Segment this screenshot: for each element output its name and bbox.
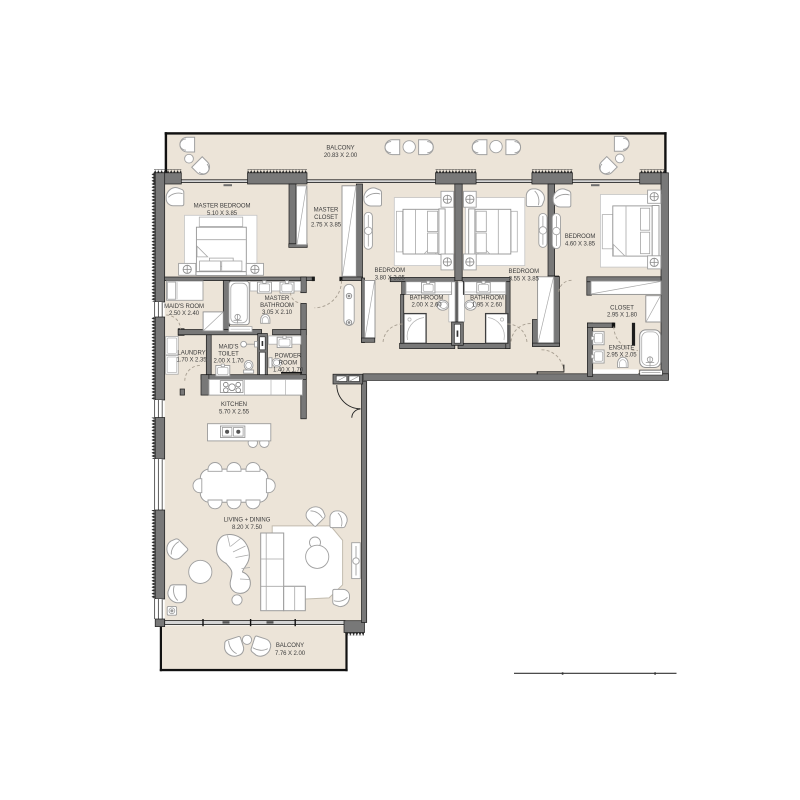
svg-text:2.95 X 1.80: 2.95 X 1.80 <box>607 313 638 319</box>
svg-text:2.00 X 2.60: 2.00 X 2.60 <box>411 303 442 309</box>
svg-text:LAUNDRY: LAUNDRY <box>177 351 205 357</box>
svg-text:BEDROOM: BEDROOM <box>509 269 540 275</box>
svg-text:TOILET: TOILET <box>218 352 239 358</box>
svg-text:4.60 X 3.85: 4.60 X 3.85 <box>565 242 596 248</box>
svg-text:KITCHEN: KITCHEN <box>221 402 247 408</box>
svg-text:7.76 X 2.00: 7.76 X 2.00 <box>275 651 306 657</box>
svg-text:ENSUITE: ENSUITE <box>609 346 635 352</box>
svg-text:1.70 X 2.35: 1.70 X 2.35 <box>176 358 207 364</box>
svg-text:MASTER: MASTER <box>314 208 339 214</box>
svg-text:CLOSET: CLOSET <box>610 306 634 312</box>
svg-text:3.80 X 3.85: 3.80 X 3.85 <box>375 276 406 282</box>
svg-text:BATHROOM: BATHROOM <box>470 296 504 302</box>
svg-text:BALCONY: BALCONY <box>276 643 304 649</box>
svg-text:2.50 X 2.40: 2.50 X 2.40 <box>169 311 200 317</box>
svg-text:BEDROOM: BEDROOM <box>565 234 596 240</box>
svg-text:BATHROOM: BATHROOM <box>260 303 294 309</box>
svg-text:LIVING + DINING: LIVING + DINING <box>224 518 271 524</box>
svg-text:8.20 X 7.50: 8.20 X 7.50 <box>232 525 263 531</box>
svg-text:MASTER BEDROOM: MASTER BEDROOM <box>194 204 251 210</box>
svg-text:CLOSET: CLOSET <box>314 215 338 221</box>
svg-text:2.75 X 3.85: 2.75 X 3.85 <box>311 223 342 229</box>
svg-text:5.70 X 2.55: 5.70 X 2.55 <box>219 410 250 416</box>
svg-text:BATHROOM: BATHROOM <box>410 296 444 302</box>
svg-text:3.05 X 2.10: 3.05 X 2.10 <box>262 310 293 316</box>
svg-text:ROOM: ROOM <box>279 361 297 367</box>
svg-text:MASTER: MASTER <box>265 296 290 302</box>
svg-text:1.95 X 2.60: 1.95 X 2.60 <box>472 303 503 309</box>
svg-text:MAID'S: MAID'S <box>219 345 239 351</box>
svg-text:3.55 X 3.85: 3.55 X 3.85 <box>509 277 540 283</box>
svg-text:BALCONY: BALCONY <box>326 146 354 152</box>
svg-text:POWDER: POWDER <box>275 354 302 360</box>
svg-text:BEDROOM: BEDROOM <box>375 268 406 274</box>
svg-text:2.95 X 2.05: 2.95 X 2.05 <box>606 353 637 359</box>
svg-text:5.10 X 3.85: 5.10 X 3.85 <box>207 211 238 217</box>
svg-text:MAID'S ROOM: MAID'S ROOM <box>164 304 204 310</box>
svg-text:1.40 X 1.70: 1.40 X 1.70 <box>273 368 304 374</box>
svg-text:2.00 X 1.70: 2.00 X 1.70 <box>213 359 244 365</box>
svg-text:20.83 X 2.00: 20.83 X 2.00 <box>324 153 358 159</box>
